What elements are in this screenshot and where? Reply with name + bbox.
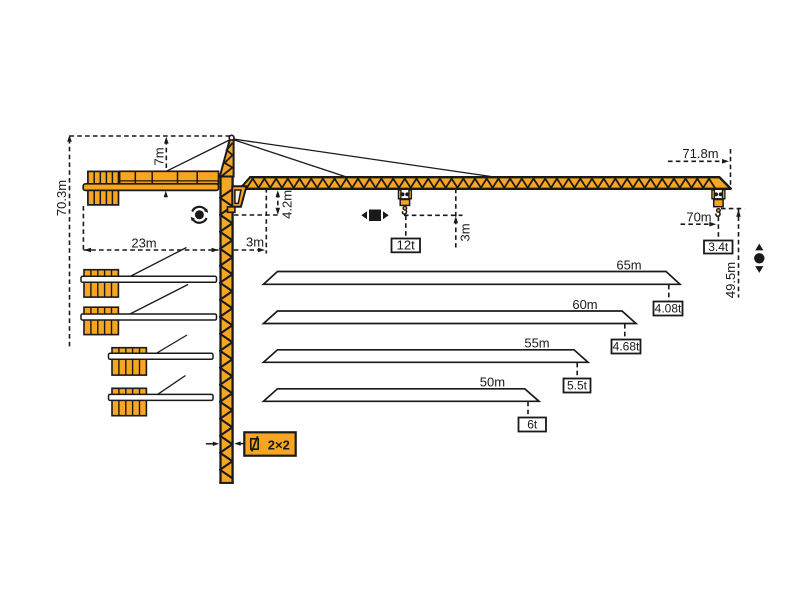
svg-text:4.2m: 4.2m — [280, 190, 295, 219]
svg-text:3m: 3m — [246, 235, 264, 250]
svg-text:23m: 23m — [131, 236, 156, 251]
svg-text:6t: 6t — [527, 418, 538, 432]
svg-text:70.3m: 70.3m — [54, 180, 69, 216]
svg-text:65m: 65m — [616, 258, 641, 273]
svg-text:12t: 12t — [397, 238, 415, 253]
svg-text:70m: 70m — [686, 210, 711, 225]
svg-text:60m: 60m — [572, 297, 597, 312]
svg-text:50m: 50m — [480, 374, 505, 389]
svg-text:49.5m: 49.5m — [723, 262, 738, 298]
svg-text:7m: 7m — [152, 147, 167, 165]
svg-text:2×2: 2×2 — [268, 438, 290, 453]
svg-text:55m: 55m — [524, 336, 549, 351]
svg-text:3m: 3m — [458, 223, 473, 241]
svg-text:71.8m: 71.8m — [682, 146, 718, 161]
svg-text:3.4t: 3.4t — [708, 240, 729, 254]
svg-text:4.08t: 4.08t — [655, 302, 682, 316]
svg-text:5.5t: 5.5t — [567, 379, 588, 393]
svg-text:4.68t: 4.68t — [613, 340, 640, 354]
